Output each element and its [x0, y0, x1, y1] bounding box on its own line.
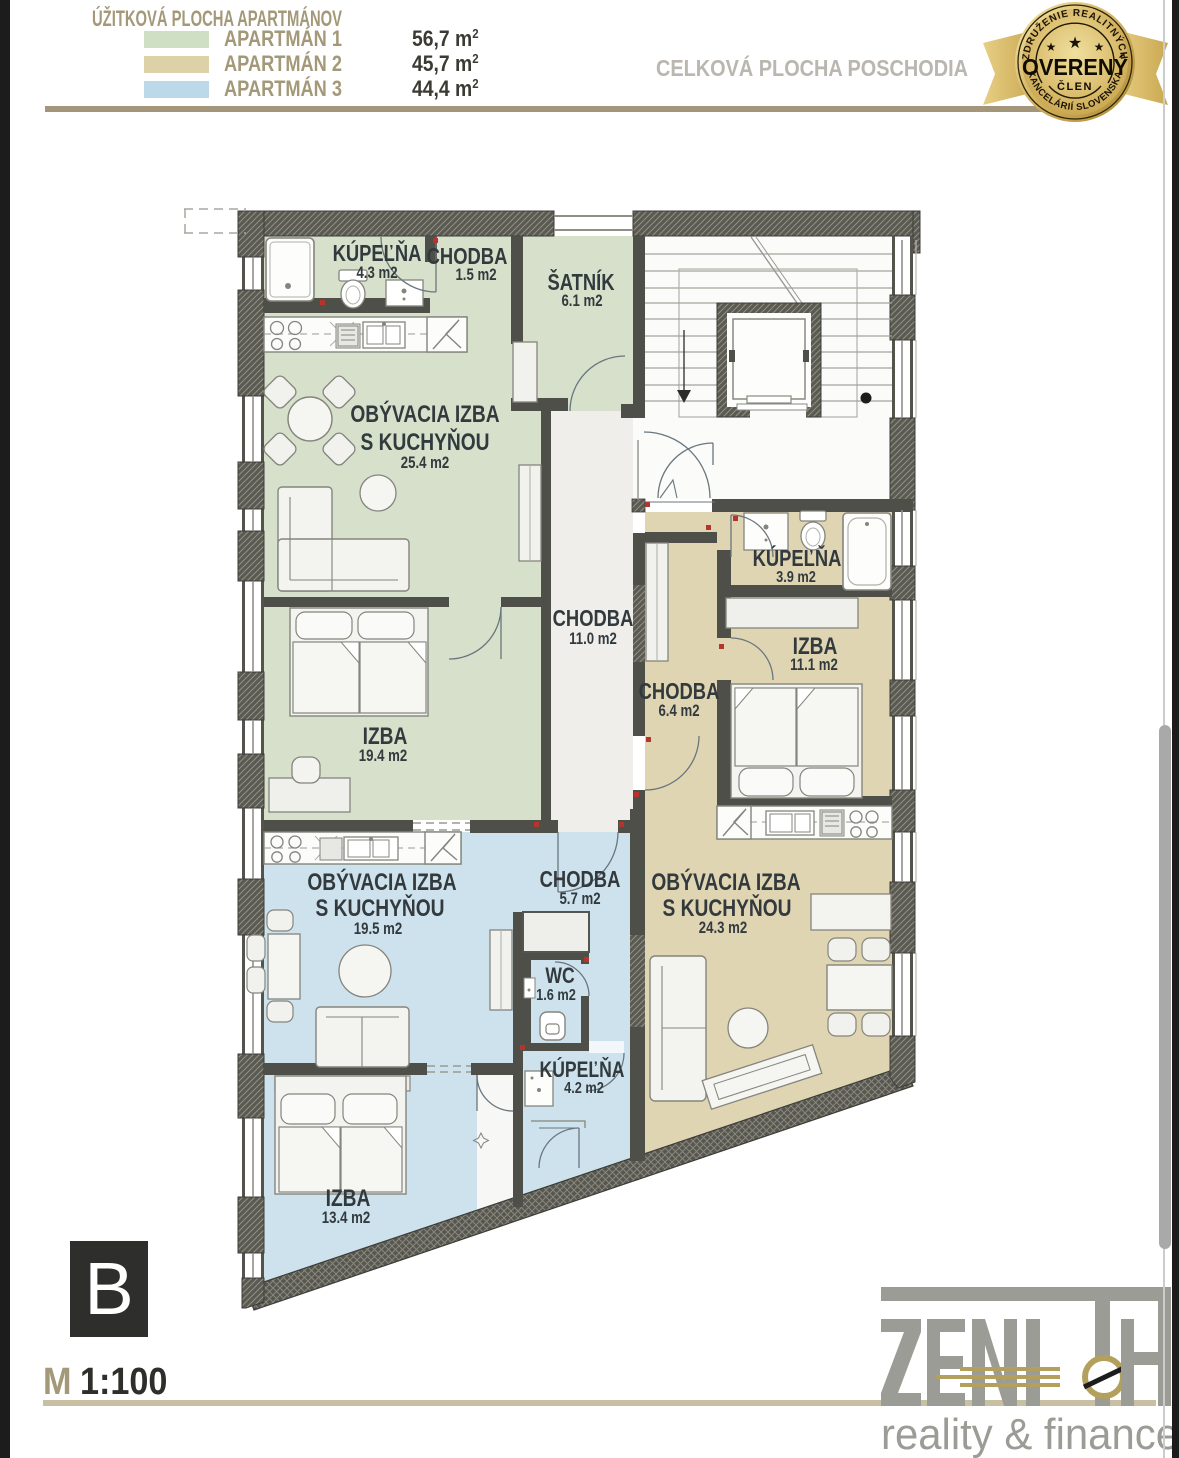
svg-text:★: ★: [1094, 40, 1105, 54]
svg-text:IZBA: IZBA: [363, 722, 408, 750]
svg-text:★: ★: [1046, 40, 1057, 54]
svg-text:CELKOVÁ PLOCHA POSCHODIA: CELKOVÁ PLOCHA POSCHODIA: [656, 54, 968, 81]
svg-text:4.3 m2: 4.3 m2: [356, 264, 397, 283]
svg-text:M: M: [43, 1359, 71, 1402]
svg-text:56,7 m2: 56,7 m2: [412, 26, 479, 51]
svg-text:ČLEN: ČLEN: [1057, 80, 1093, 93]
svg-text:6.1 m2: 6.1 m2: [561, 292, 602, 311]
svg-text:11.0 m2: 11.0 m2: [569, 630, 617, 649]
svg-text:44,4 m2: 44,4 m2: [412, 76, 479, 101]
svg-text:S KUCHYŇOU: S KUCHYŇOU: [316, 894, 445, 922]
svg-text:1.6 m2: 1.6 m2: [536, 987, 576, 1005]
svg-text:IZBA: IZBA: [326, 1184, 371, 1212]
svg-text:★: ★: [1068, 35, 1082, 52]
svg-text:19.4 m2: 19.4 m2: [359, 747, 407, 766]
svg-text:APARTMÁN 3: APARTMÁN 3: [224, 76, 342, 101]
svg-text:24.3 m2: 24.3 m2: [699, 919, 747, 938]
svg-text:1.5 m2: 1.5 m2: [455, 266, 496, 285]
svg-text:CHODBA: CHODBA: [553, 606, 634, 631]
svg-text:OBÝVACIA IZBA: OBÝVACIA IZBA: [307, 868, 457, 896]
svg-text:19.5 m2: 19.5 m2: [354, 920, 402, 939]
svg-text:1:100: 1:100: [80, 1359, 167, 1402]
svg-text:reality & finance: reality & finance: [881, 1410, 1179, 1458]
svg-text:KÚPEĽŇA: KÚPEĽŇA: [539, 1056, 624, 1083]
svg-text:11.1 m2: 11.1 m2: [790, 656, 838, 675]
svg-text:3.9 m2: 3.9 m2: [776, 569, 816, 587]
svg-text:APARTMÁN 2: APARTMÁN 2: [224, 51, 342, 76]
svg-text:KÚPEĽŇA: KÚPEĽŇA: [333, 240, 422, 267]
svg-text:OBÝVACIA IZBA: OBÝVACIA IZBA: [651, 868, 801, 896]
svg-text:WC: WC: [545, 964, 574, 988]
svg-text:25.4 m2: 25.4 m2: [401, 454, 449, 473]
svg-text:6.4 m2: 6.4 m2: [658, 702, 699, 721]
svg-text:S KUCHYŇOU: S KUCHYŇOU: [663, 894, 792, 922]
svg-text:S KUCHYŇOU: S KUCHYŇOU: [361, 428, 490, 456]
svg-text:KÚPEĽŇA: KÚPEĽŇA: [753, 545, 842, 572]
svg-text:4.2 m2: 4.2 m2: [564, 1080, 604, 1098]
svg-text:13.4 m2: 13.4 m2: [322, 1209, 370, 1228]
svg-text:45,7 m2: 45,7 m2: [412, 51, 479, 76]
svg-text:OVERENÝ: OVERENÝ: [1022, 53, 1128, 80]
svg-text:APARTMÁN 1: APARTMÁN 1: [224, 26, 342, 51]
svg-text:B: B: [84, 1247, 133, 1330]
svg-text:OBÝVACIA IZBA: OBÝVACIA IZBA: [350, 400, 500, 428]
svg-text:5.7 m2: 5.7 m2: [559, 890, 600, 909]
